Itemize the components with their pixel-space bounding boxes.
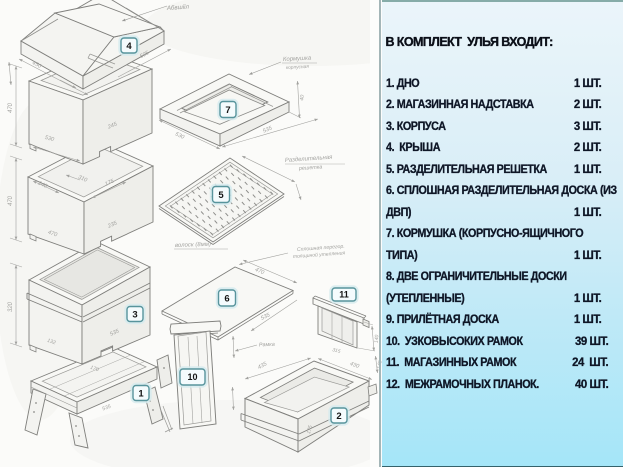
svg-text:320: 320 [8,301,14,312]
svg-text:11: 11 [339,290,349,300]
svg-text:4: 4 [126,41,132,52]
svg-text:1: 1 [138,388,144,399]
svg-text:5: 5 [218,190,224,201]
svg-text:Рамка: Рамка [259,342,275,349]
svg-text:470: 470 [8,195,14,206]
svg-text:3: 3 [132,309,137,320]
svg-text:волоск (8мм): волоск (8мм) [175,242,211,249]
svg-text:470: 470 [8,102,14,113]
svg-text:2: 2 [336,411,341,422]
svg-text:40: 40 [299,94,306,101]
svg-text:7: 7 [225,105,230,116]
svg-text:6: 6 [224,293,229,304]
svg-text:10: 10 [187,372,197,382]
